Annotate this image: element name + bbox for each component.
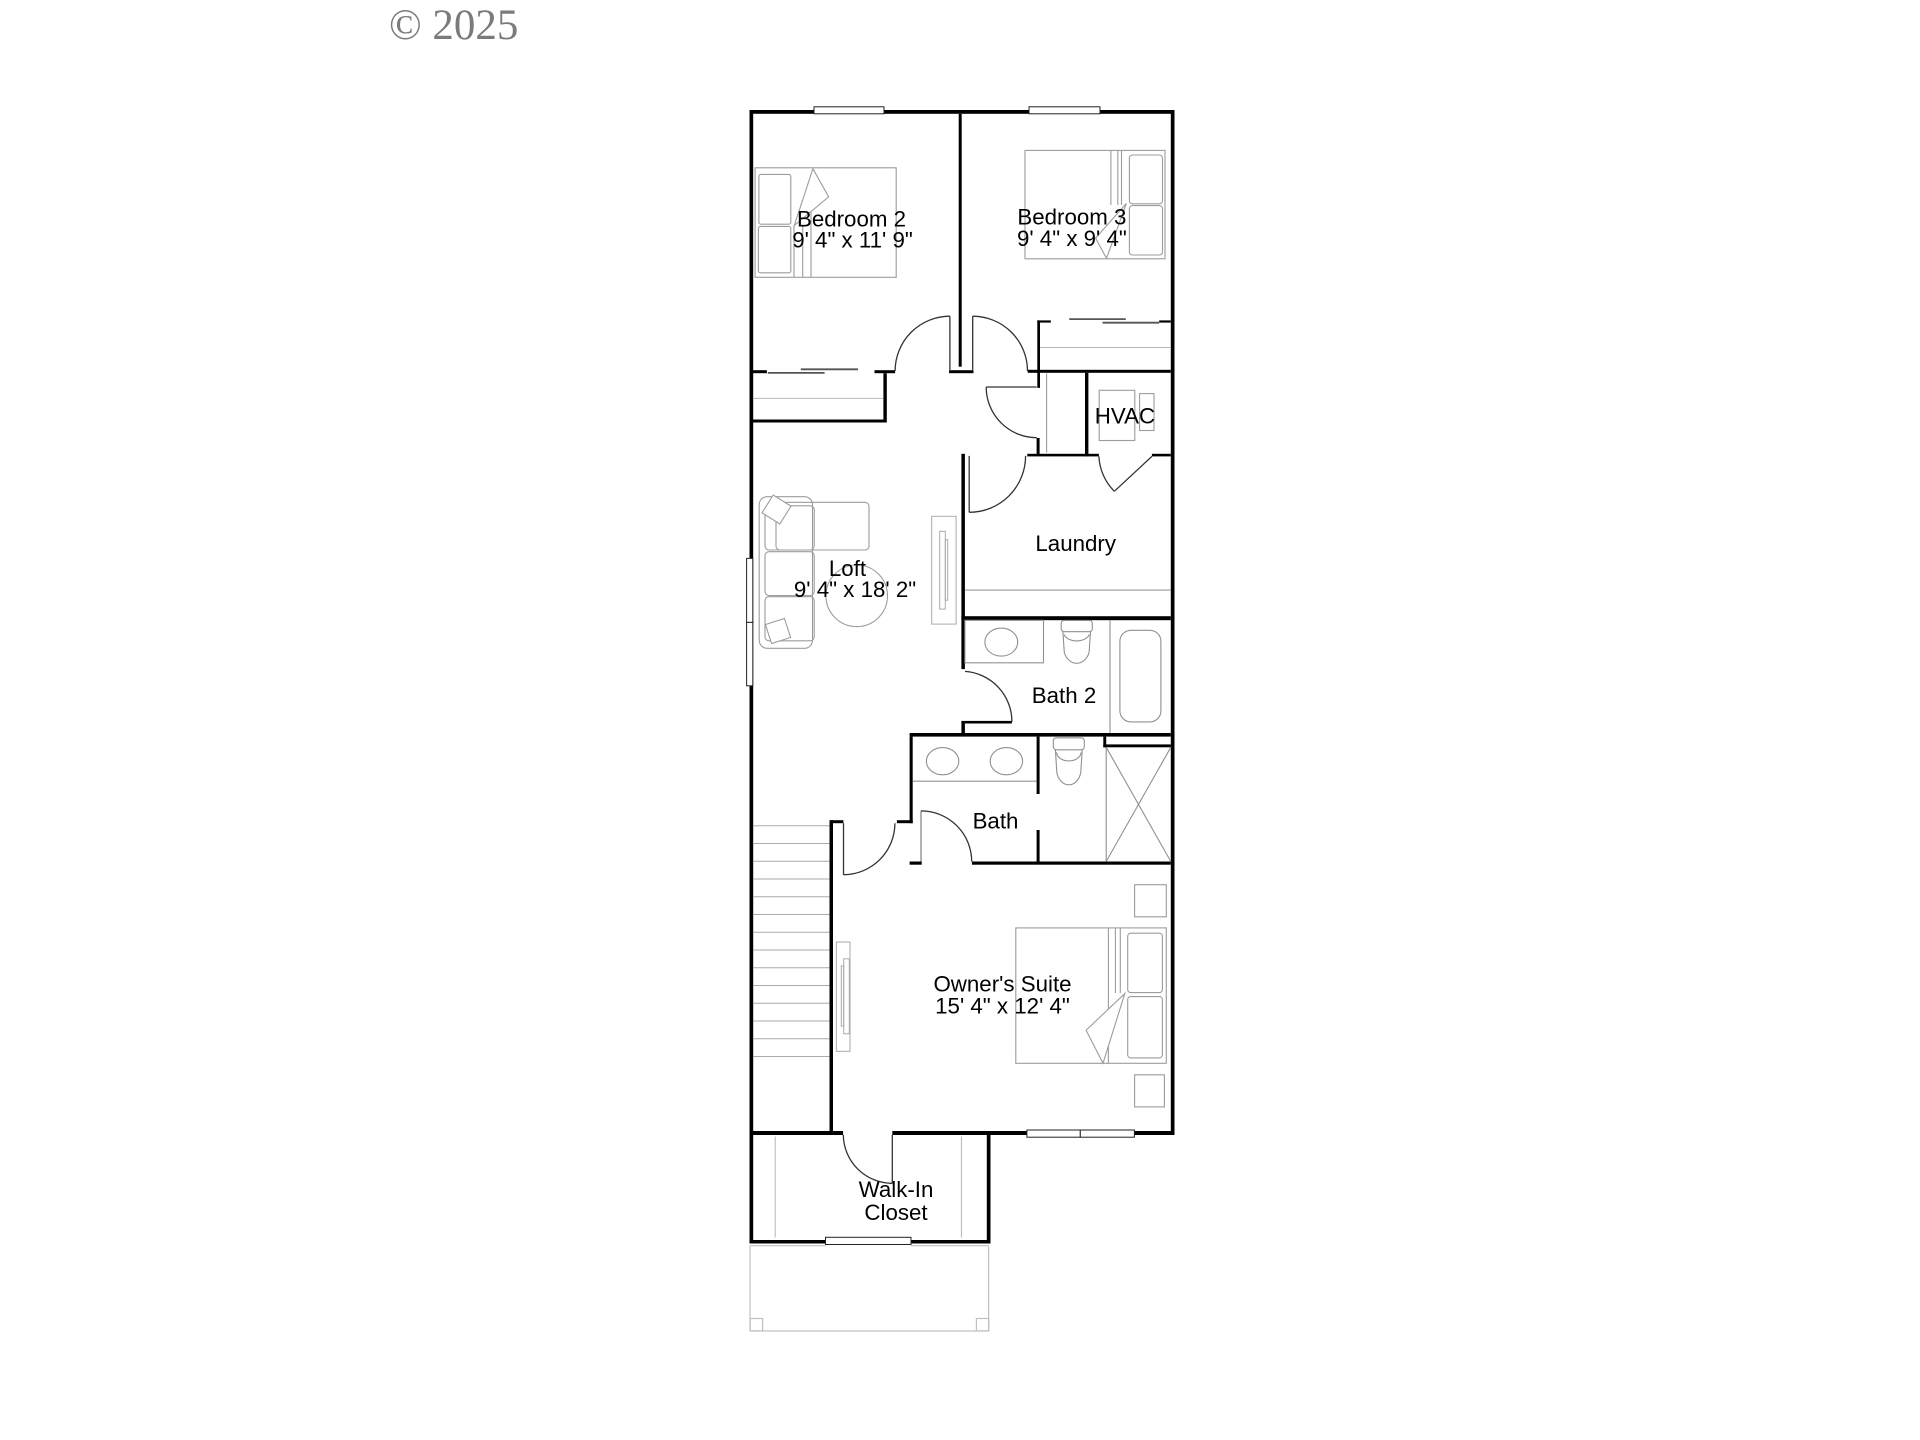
svg-text:9' 4" x 18' 2": 9' 4" x 18' 2" bbox=[794, 577, 916, 602]
svg-text:Bath 2: Bath 2 bbox=[1032, 683, 1096, 708]
svg-text:Walk-In: Walk-In bbox=[859, 1177, 934, 1202]
svg-text:9' 4" x 9' 4": 9' 4" x 9' 4" bbox=[1017, 226, 1127, 251]
svg-text:Bath: Bath bbox=[973, 809, 1019, 834]
svg-text:© 2025: © 2025 bbox=[389, 2, 518, 49]
svg-text:15' 4" x 12' 4": 15' 4" x 12' 4" bbox=[935, 994, 1070, 1019]
svg-text:Closet: Closet bbox=[864, 1200, 928, 1225]
svg-text:9' 4" x 11' 9": 9' 4" x 11' 9" bbox=[792, 228, 913, 253]
svg-text:Laundry: Laundry bbox=[1035, 531, 1116, 556]
svg-text:HVAC: HVAC bbox=[1095, 404, 1155, 429]
